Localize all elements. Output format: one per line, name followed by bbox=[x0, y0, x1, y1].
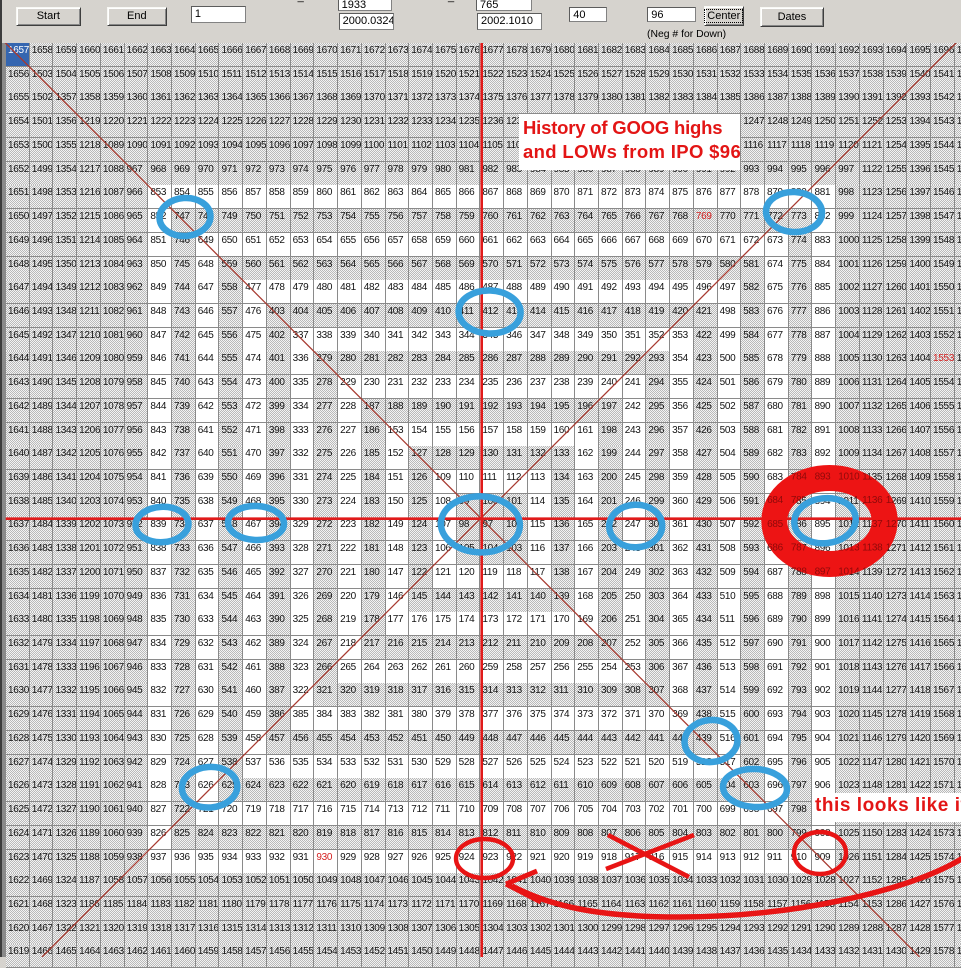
svg-text:1139: 1139 bbox=[862, 566, 883, 577]
svg-text:682: 682 bbox=[767, 448, 784, 459]
svg-text:896: 896 bbox=[815, 543, 832, 554]
svg-text:686: 686 bbox=[767, 543, 784, 554]
svg-text:892: 892 bbox=[815, 448, 832, 459]
svg-text:1269: 1269 bbox=[886, 495, 908, 506]
svg-text:1015: 1015 bbox=[838, 590, 860, 601]
svg-text:898: 898 bbox=[815, 590, 832, 601]
svg-text:684: 684 bbox=[767, 495, 784, 506]
svg-text:1009: 1009 bbox=[838, 448, 860, 459]
svg-text:894: 894 bbox=[815, 495, 832, 506]
svg-text:590: 590 bbox=[743, 472, 760, 483]
svg-text:1273: 1273 bbox=[886, 590, 908, 601]
svg-text:1412: 1412 bbox=[910, 543, 932, 554]
svg-text:1268: 1268 bbox=[886, 472, 908, 483]
svg-text:893: 893 bbox=[815, 472, 832, 483]
svg-text:592: 592 bbox=[743, 519, 760, 530]
svg-text:1409: 1409 bbox=[910, 472, 932, 483]
svg-text:1270: 1270 bbox=[886, 519, 908, 530]
svg-text:685: 685 bbox=[767, 519, 784, 530]
svg-text:785: 785 bbox=[791, 495, 808, 506]
svg-text:688: 688 bbox=[767, 590, 784, 601]
svg-text:589: 589 bbox=[743, 448, 760, 459]
svg-text:1134: 1134 bbox=[862, 448, 883, 459]
svg-text:1408: 1408 bbox=[910, 448, 932, 459]
svg-text:895: 895 bbox=[815, 519, 832, 530]
svg-text:789: 789 bbox=[791, 590, 808, 601]
svg-text:1140: 1140 bbox=[862, 590, 883, 601]
svg-text:1410: 1410 bbox=[910, 495, 932, 506]
svg-text:1014: 1014 bbox=[838, 566, 860, 577]
svg-text:787: 787 bbox=[791, 543, 808, 554]
svg-text:1135: 1135 bbox=[862, 472, 883, 483]
svg-text:783: 783 bbox=[791, 448, 808, 459]
svg-text:784: 784 bbox=[791, 472, 808, 483]
svg-text:594: 594 bbox=[743, 566, 760, 577]
svg-text:687: 687 bbox=[767, 566, 784, 577]
svg-text:593: 593 bbox=[743, 543, 760, 554]
svg-text:897: 897 bbox=[815, 566, 832, 577]
svg-text:1272: 1272 bbox=[886, 566, 908, 577]
svg-text:1413: 1413 bbox=[910, 566, 932, 577]
svg-text:683: 683 bbox=[767, 472, 784, 483]
svg-text:1411: 1411 bbox=[910, 519, 931, 530]
svg-text:1136: 1136 bbox=[862, 495, 883, 506]
svg-text:1010: 1010 bbox=[838, 472, 860, 483]
svg-text:1271: 1271 bbox=[886, 543, 908, 554]
svg-text:786: 786 bbox=[791, 519, 808, 530]
svg-text:1011: 1011 bbox=[838, 495, 859, 506]
svg-text:1138: 1138 bbox=[862, 543, 883, 554]
svg-text:1137: 1137 bbox=[862, 519, 883, 530]
svg-text:595: 595 bbox=[743, 590, 760, 601]
svg-text:1012: 1012 bbox=[838, 519, 860, 530]
svg-text:1013: 1013 bbox=[838, 543, 860, 554]
svg-text:1414: 1414 bbox=[910, 590, 932, 601]
svg-text:1267: 1267 bbox=[886, 448, 908, 459]
svg-text:788: 788 bbox=[791, 566, 808, 577]
svg-text:591: 591 bbox=[743, 495, 760, 506]
